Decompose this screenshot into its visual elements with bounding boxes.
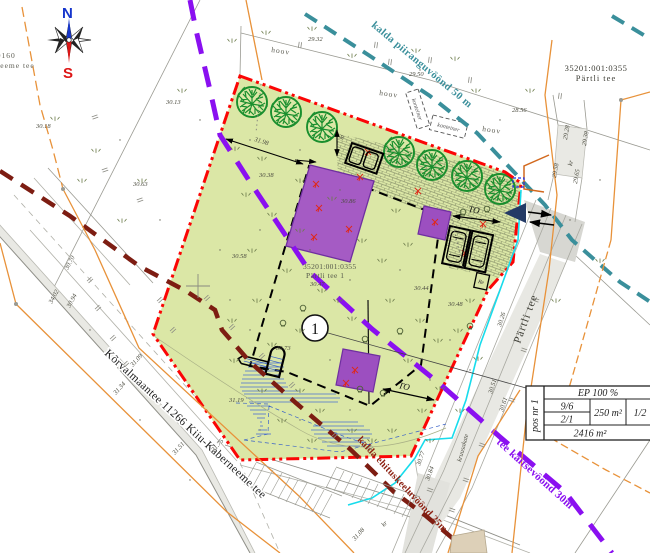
- svg-text:30.48: 30.48: [447, 301, 463, 308]
- svg-text:EP 100 %: EP 100 %: [577, 388, 618, 399]
- svg-text:30.47: 30.47: [309, 281, 325, 288]
- svg-text:30.86: 30.86: [340, 198, 356, 205]
- svg-text:30160: 30160: [0, 51, 16, 60]
- svg-text:pos nr 1: pos nr 1: [530, 399, 541, 433]
- svg-text:250 m²: 250 m²: [594, 408, 623, 419]
- svg-text:S: S: [63, 65, 73, 82]
- svg-text:2416 m²: 2416 m²: [574, 429, 608, 440]
- svg-text:28.56: 28.56: [512, 107, 527, 114]
- svg-text:31.19: 31.19: [228, 397, 244, 404]
- svg-text:30.63: 30.63: [132, 181, 148, 188]
- svg-text:Pärtli tee: Pärtli tee: [576, 73, 616, 83]
- svg-text:2/1: 2/1: [561, 415, 574, 426]
- svg-text:Pärtli tee 1: Pärtli tee 1: [306, 271, 345, 280]
- svg-text:30.13: 30.13: [165, 99, 181, 106]
- svg-text:9/6: 9/6: [561, 402, 574, 413]
- svg-text:TO: TO: [468, 204, 481, 216]
- svg-text:35201:001:0355: 35201:001:0355: [303, 262, 356, 271]
- svg-text:1/2: 1/2: [634, 408, 647, 419]
- svg-text:30.38: 30.38: [258, 172, 274, 179]
- svg-text:30.44: 30.44: [413, 285, 429, 292]
- svg-text:30.18: 30.18: [35, 123, 51, 130]
- svg-text:30.58: 30.58: [231, 253, 247, 260]
- svg-text:N: N: [62, 5, 73, 22]
- svg-text:29.32: 29.32: [308, 36, 323, 43]
- svg-text:35201:001:0355: 35201:001:0355: [565, 63, 628, 73]
- svg-text:rneeme tee: rneeme tee: [0, 61, 35, 70]
- svg-text:29.50: 29.50: [409, 71, 424, 78]
- svg-text:1: 1: [311, 321, 319, 338]
- svg-text:30.73: 30.73: [275, 345, 291, 352]
